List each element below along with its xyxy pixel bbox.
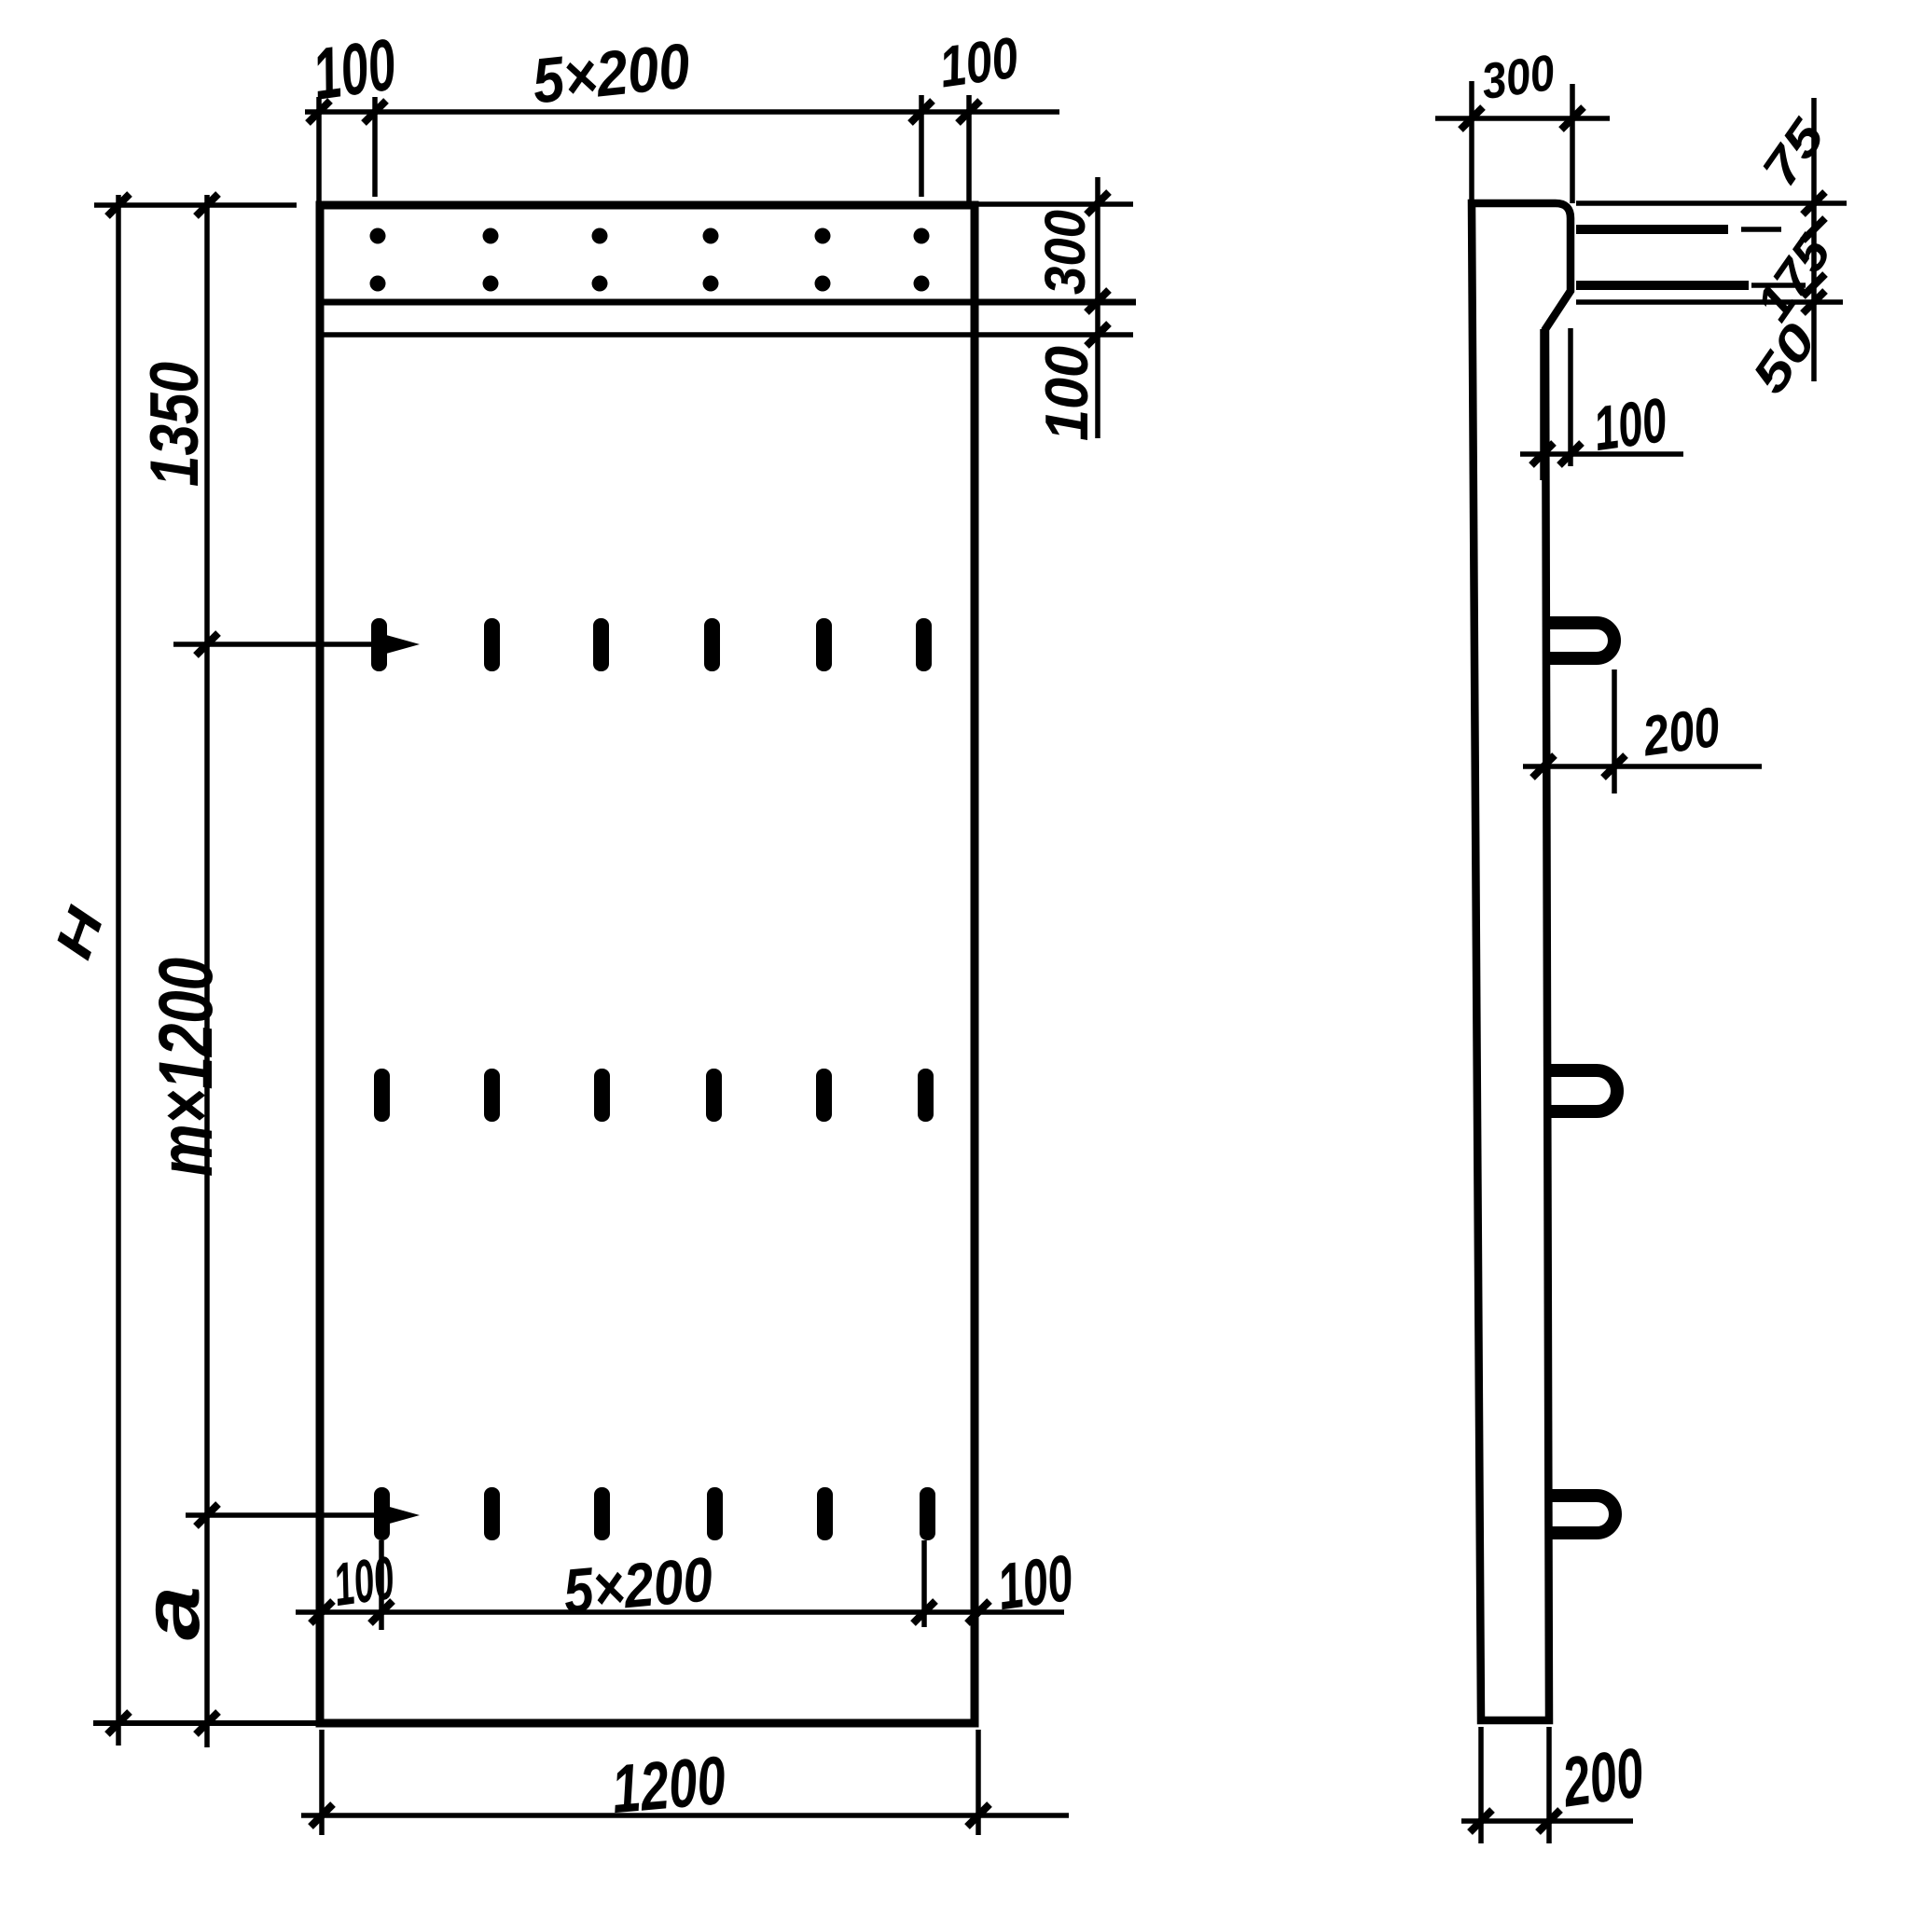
- svg-text:100: 100: [935, 26, 1022, 101]
- svg-text:5×200: 5×200: [561, 1544, 715, 1627]
- svg-text:300: 300: [1478, 45, 1558, 110]
- svg-text:100: 100: [993, 1541, 1077, 1623]
- svg-text:100: 100: [1032, 346, 1100, 441]
- svg-text:1200: 1200: [609, 1743, 729, 1828]
- svg-text:100: 100: [329, 1543, 398, 1619]
- svg-text:200: 200: [1639, 696, 1723, 768]
- svg-text:1350: 1350: [137, 362, 213, 487]
- svg-text:100: 100: [308, 22, 400, 115]
- svg-text:300: 300: [1033, 210, 1097, 295]
- svg-text:m×1200: m×1200: [144, 958, 228, 1177]
- svg-text:200: 200: [1557, 1732, 1648, 1821]
- svg-text:a: a: [127, 1586, 216, 1640]
- svg-text:100: 100: [1589, 385, 1671, 464]
